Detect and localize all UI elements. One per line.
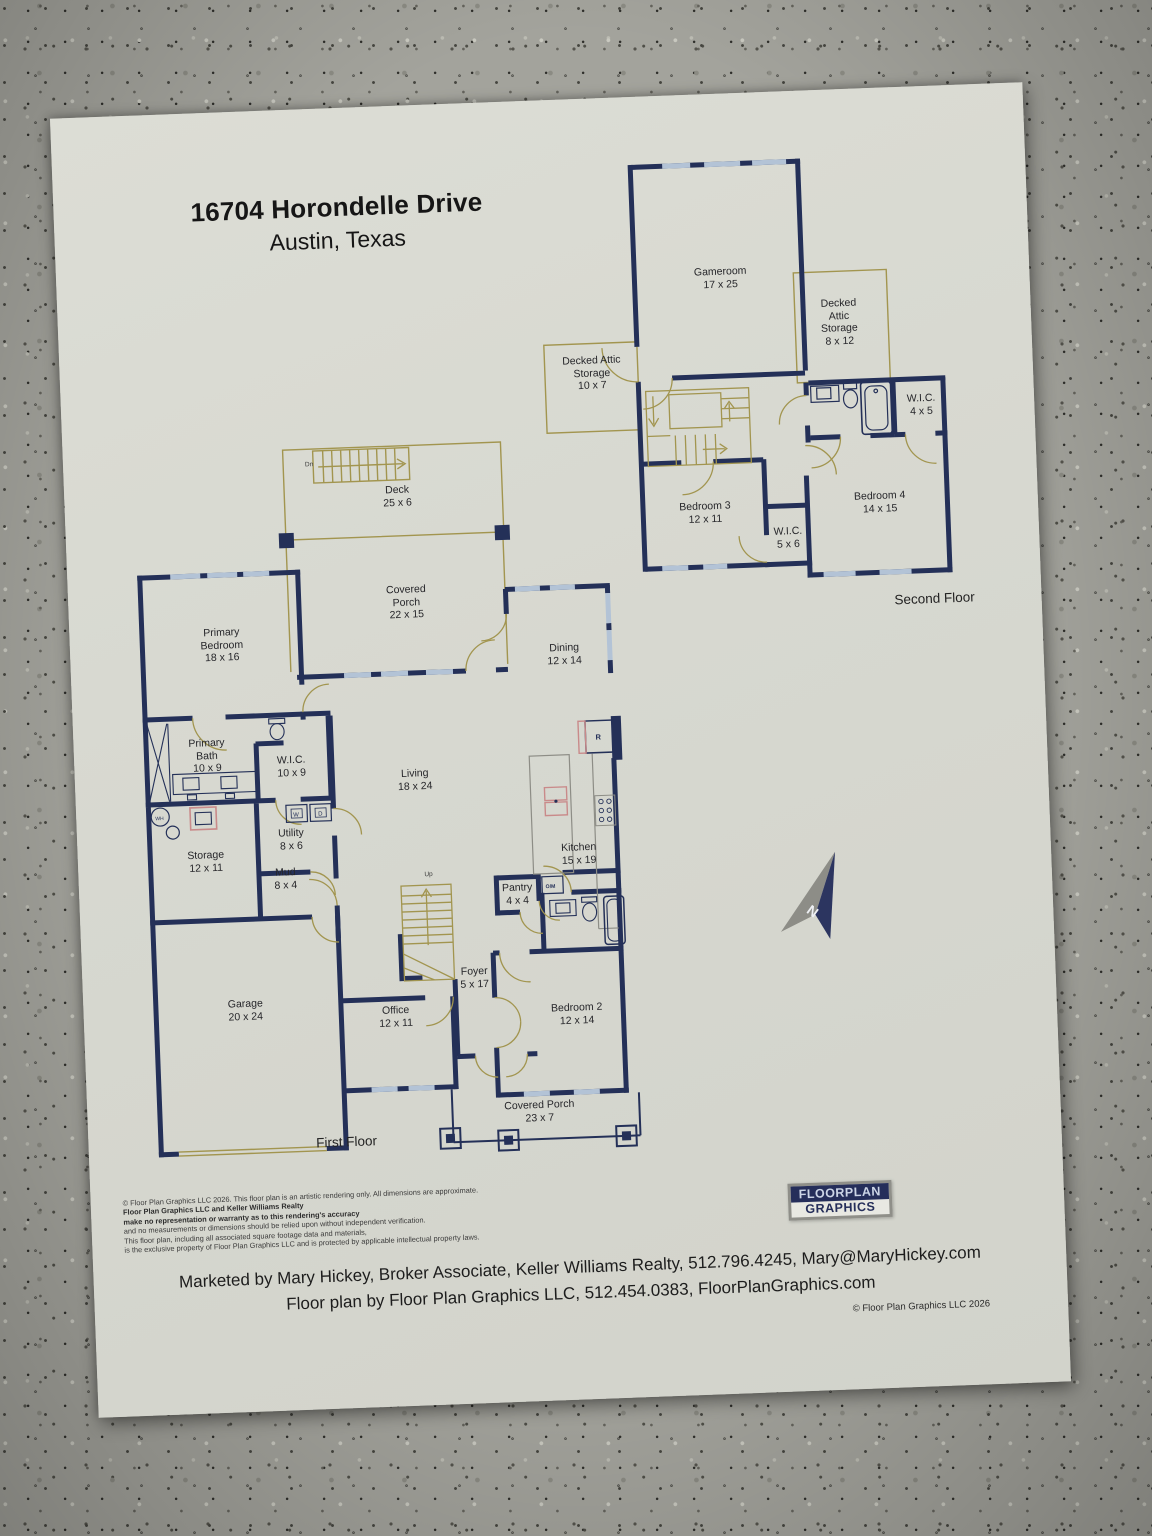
room-label-wic-109: W.I.C.10 x 9 [277, 754, 307, 780]
second-floor-walls [630, 153, 953, 583]
room-label-foyer: Foyer5 x 17 [460, 965, 490, 991]
garage-door [179, 1147, 327, 1157]
stairs-up-label: Up [424, 871, 433, 878]
second-floor-bath-fixtures [810, 381, 892, 436]
room-label-primary-bedroom: Primary Bedroom18 x 16 [190, 625, 253, 665]
deck-outline [283, 442, 509, 672]
room-label-living: Living18 x 24 [397, 767, 432, 793]
room-label-wic-45: W.I.C.4 x 5 [907, 392, 937, 418]
second-floor-doors [602, 336, 940, 568]
floor-plan-sheet: N WH W D R O/M 16704 Horondelle Drive Au… [50, 82, 1071, 1418]
second-floor-label: Second Floor [894, 589, 975, 607]
stairs-down-label: Dn [305, 461, 314, 468]
room-label-bedroom4: Bedroom 414 x 15 [854, 489, 906, 516]
washer-label: W [293, 812, 299, 818]
room-label-pantry: Pantry4 x 4 [502, 881, 533, 907]
room-label-bedroom2: Bedroom 212 x 14 [551, 1001, 603, 1028]
oven-microwave-label: O/M [546, 884, 556, 890]
first-floor-stairs-icon [401, 884, 455, 981]
first-floor-plan: N [133, 430, 846, 1163]
room-label-attic-left: Decked Attic Storage10 x 7 [550, 353, 633, 394]
room-label-kitchen: Kitchen15 x 19 [561, 841, 597, 867]
room-label-garage: Garage20 x 24 [228, 997, 264, 1023]
room-label-covered-porch-rear: Covered Porch22 x 15 [376, 583, 437, 623]
room-label-wic-56: W.I.C.5 x 6 [773, 525, 803, 551]
second-floor-stairs-icon [646, 388, 752, 467]
room-label-covered-porch-front: Covered Porch23 x 7 [504, 1098, 575, 1126]
room-label-office: Office12 x 11 [379, 1004, 414, 1030]
photo-of-floor-plan: { "colors":{"wall_navy":"#243058","tan":… [0, 0, 1152, 1536]
room-label-mud: Mud8 x 4 [274, 866, 298, 892]
utility-fixtures [151, 802, 332, 840]
hall-bath-fixtures [550, 896, 626, 947]
room-label-gameroom: Gameroom17 x 25 [694, 265, 747, 292]
porch-post [495, 525, 511, 541]
room-label-storage: Storage12 x 11 [187, 849, 225, 875]
room-label-bedroom3: Bedroom 312 x 11 [679, 499, 731, 526]
room-label-primary-bath: Primary Bath10 x 9 [180, 736, 233, 775]
logo-line2: Graphics [791, 1199, 889, 1218]
water-heater-label: WH [155, 816, 164, 822]
refrigerator-label: R [595, 732, 601, 741]
room-label-attic-right: Decked Attic Storage8 x 12 [812, 296, 866, 348]
floorplan-graphics-logo: FloorPlan Graphics [787, 1180, 892, 1221]
room-label-dining: Dining12 x 14 [547, 641, 582, 667]
dryer-label: D [318, 811, 323, 817]
north-arrow-icon: N [778, 852, 838, 941]
room-label-deck: Deck25 x 6 [383, 483, 413, 509]
porch-post [279, 533, 295, 549]
plan-title-block: 16704 Horondelle Drive Austin, Texas [171, 186, 503, 260]
room-label-utility: Utility8 x 6 [278, 827, 305, 853]
first-floor-label: First Floor [316, 1133, 377, 1150]
